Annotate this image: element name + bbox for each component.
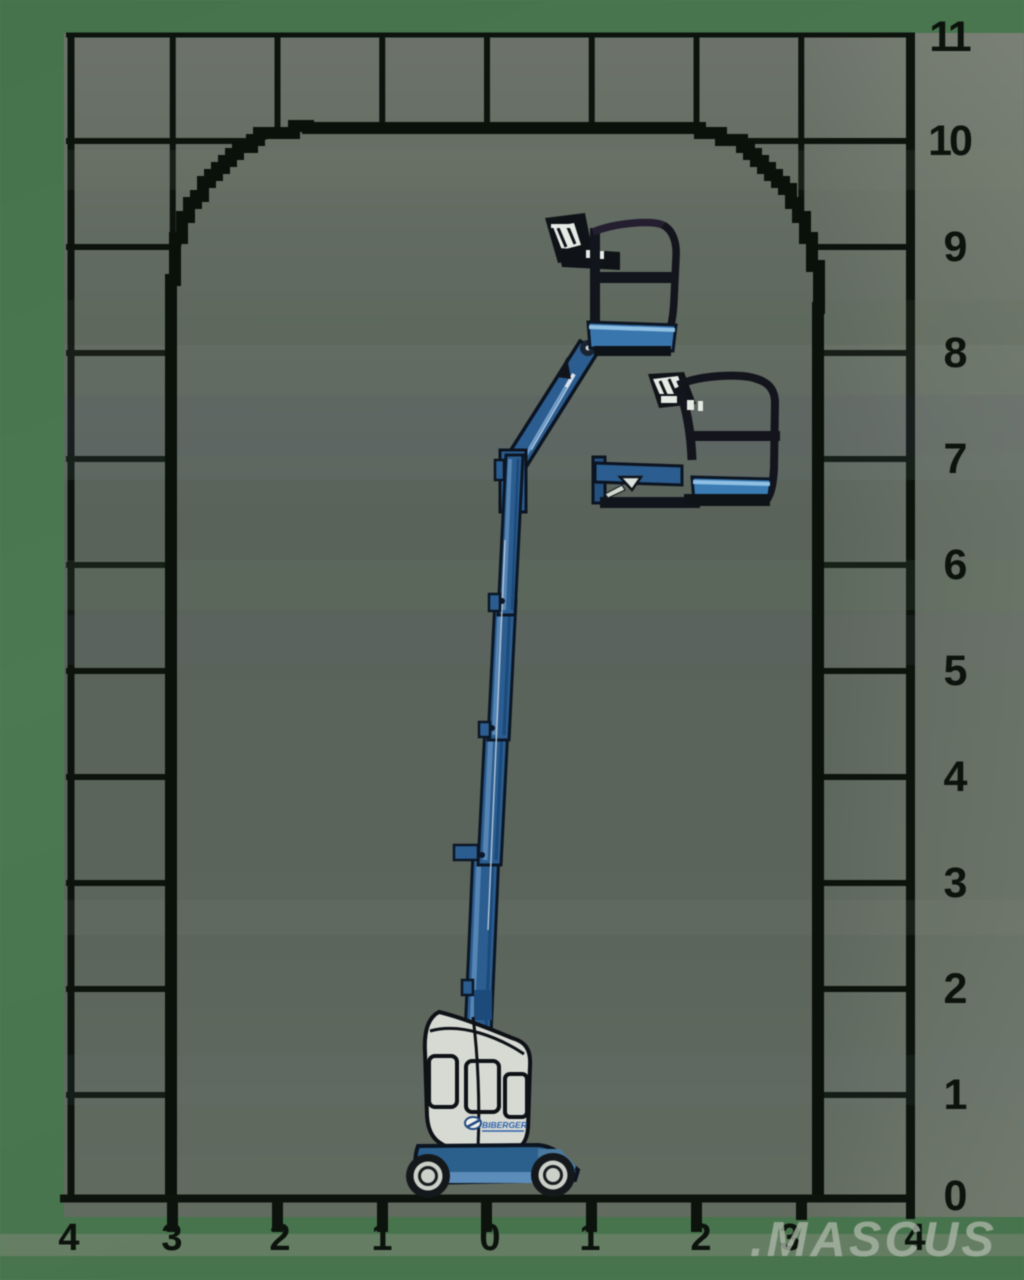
svg-text:3: 3	[944, 859, 967, 907]
svg-text:1: 1	[579, 1217, 600, 1259]
svg-text:2: 2	[944, 965, 967, 1013]
svg-text:11: 11	[929, 13, 971, 61]
svg-text:1: 1	[944, 1071, 967, 1119]
svg-text:BIBERGER: BIBERGER	[482, 1120, 528, 1130]
svg-text:0: 0	[479, 1217, 500, 1259]
svg-text:4: 4	[58, 1217, 79, 1259]
svg-text:3: 3	[161, 1217, 182, 1259]
svg-text:9: 9	[944, 223, 967, 271]
svg-text:2: 2	[690, 1217, 711, 1259]
svg-text:6: 6	[944, 541, 967, 589]
svg-text:1: 1	[371, 1217, 392, 1259]
svg-text:10: 10	[928, 117, 972, 165]
svg-text:4: 4	[944, 753, 968, 801]
svg-text:7: 7	[944, 435, 967, 483]
svg-text:8: 8	[944, 329, 967, 377]
svg-text:.MASCUS: .MASCUS	[750, 1213, 997, 1267]
svg-text:2: 2	[269, 1217, 290, 1259]
svg-text:5: 5	[944, 647, 967, 695]
